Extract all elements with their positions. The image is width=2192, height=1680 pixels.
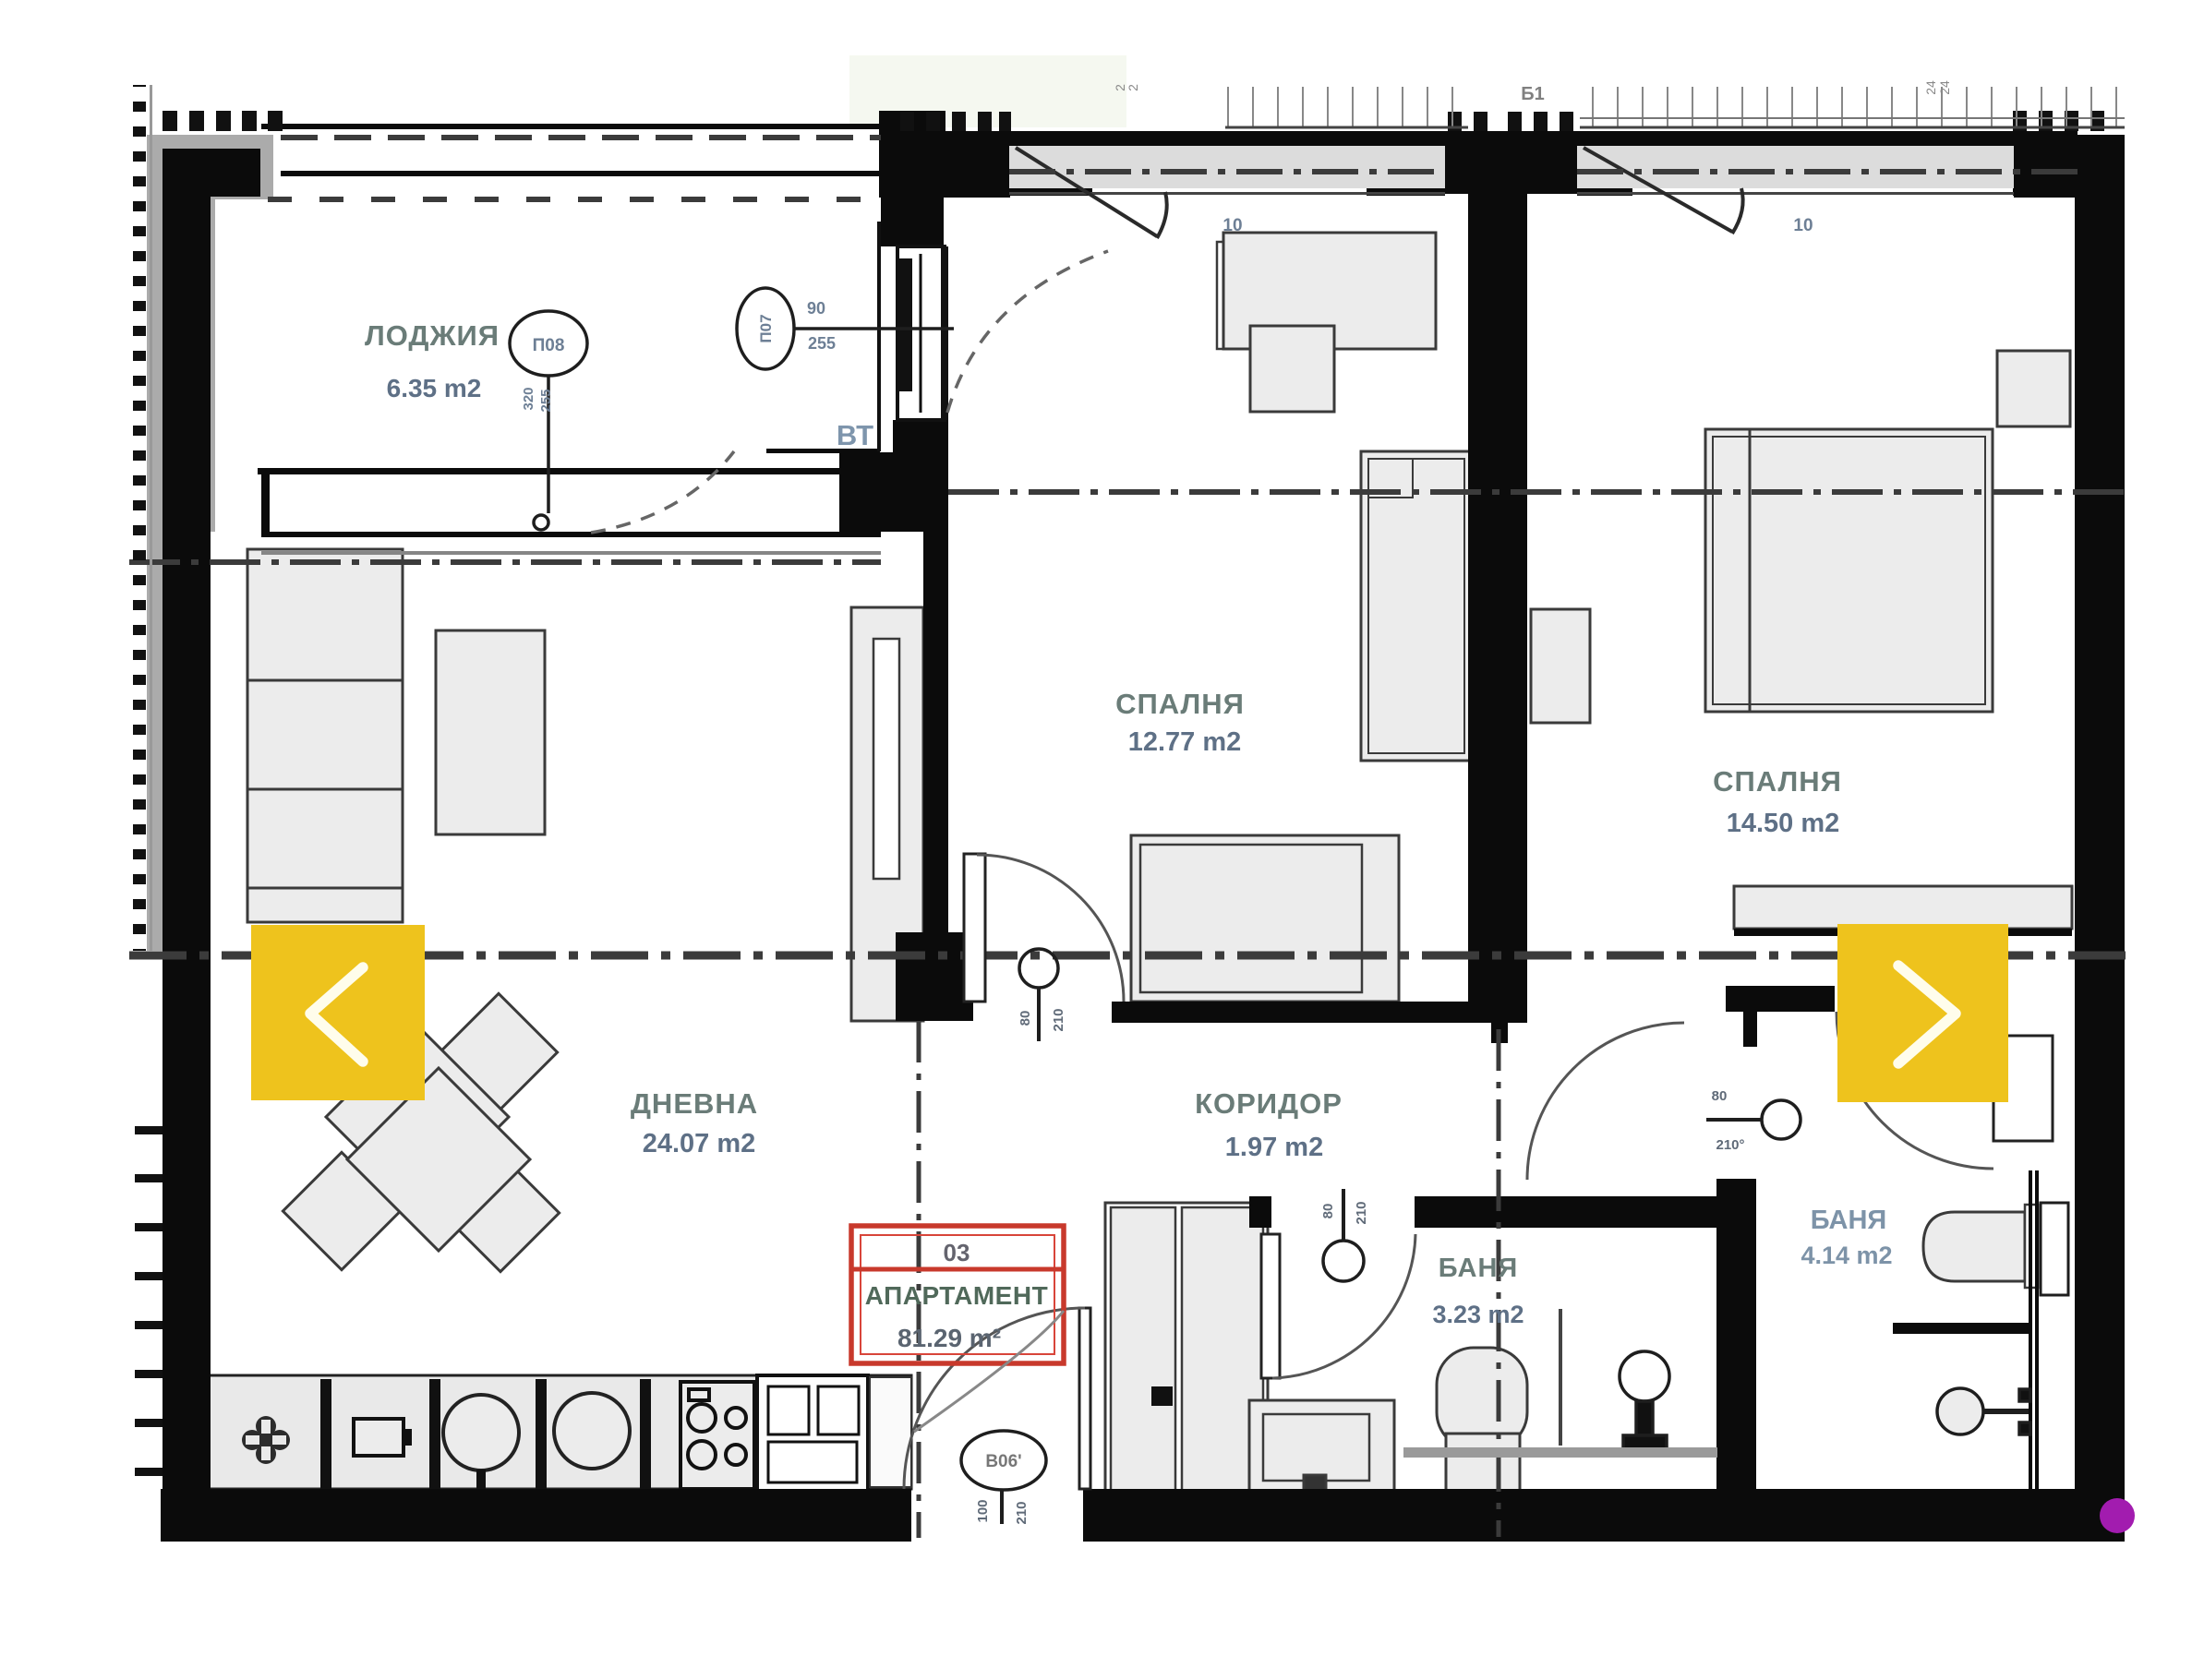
- svg-text:СПАЛНЯ: СПАЛНЯ: [1713, 765, 1842, 798]
- svg-text:10: 10: [1793, 216, 1813, 235]
- svg-text:1.97 m2: 1.97 m2: [1225, 1133, 1323, 1162]
- svg-text:210: 210: [1014, 1501, 1030, 1524]
- svg-text:2: 2: [1126, 84, 1140, 91]
- svg-text:ДНЕВНА: ДНЕВНА: [631, 1087, 758, 1120]
- svg-text:24.07 m2: 24.07 m2: [643, 1129, 756, 1158]
- svg-text:100: 100: [975, 1499, 991, 1522]
- svg-text:Б1: Б1: [1521, 84, 1545, 104]
- svg-text:6.35 m2: 6.35 m2: [387, 374, 482, 402]
- svg-text:80: 80: [1712, 1088, 1728, 1104]
- svg-text:80: 80: [1018, 1011, 1033, 1026]
- svg-text:ВТ: ВТ: [837, 419, 873, 451]
- svg-text:80: 80: [1320, 1204, 1336, 1219]
- svg-text:БАНЯ: БАНЯ: [1811, 1206, 1886, 1235]
- svg-text:КОРИДОР: КОРИДОР: [1195, 1087, 1343, 1120]
- svg-text:90: 90: [807, 299, 825, 318]
- svg-text:3.23 m2: 3.23 m2: [1432, 1301, 1524, 1328]
- svg-text:14.50 m2: 14.50 m2: [1727, 809, 1840, 838]
- svg-text:255: 255: [808, 334, 836, 353]
- svg-text:П08: П08: [533, 336, 565, 355]
- svg-text:24: 24: [1923, 80, 1938, 95]
- svg-text:БАНЯ: БАНЯ: [1439, 1254, 1518, 1283]
- svg-text:210: 210: [1051, 1008, 1066, 1031]
- svg-text:81.29 m²: 81.29 m²: [897, 1324, 1001, 1352]
- svg-text:03: 03: [944, 1239, 970, 1266]
- svg-text:СПАЛНЯ: СПАЛНЯ: [1115, 688, 1245, 720]
- svg-text:210: 210: [1354, 1201, 1369, 1224]
- svg-text:4.14 m2: 4.14 m2: [1801, 1242, 1892, 1269]
- svg-text:П07: П07: [757, 314, 775, 342]
- svg-text:АПАРТАМЕНТ: АПАРТАМЕНТ: [865, 1281, 1048, 1310]
- svg-text:10: 10: [1222, 216, 1242, 235]
- svg-text:255: 255: [538, 389, 554, 412]
- svg-text:210°: 210°: [1716, 1137, 1744, 1153]
- svg-text:320: 320: [521, 387, 536, 410]
- svg-text:ЛОДЖИЯ: ЛОДЖИЯ: [365, 319, 500, 352]
- svg-text:24: 24: [1937, 80, 1952, 95]
- svg-text:В06': В06': [985, 1452, 1021, 1471]
- svg-text:12.77 m2: 12.77 m2: [1128, 727, 1242, 757]
